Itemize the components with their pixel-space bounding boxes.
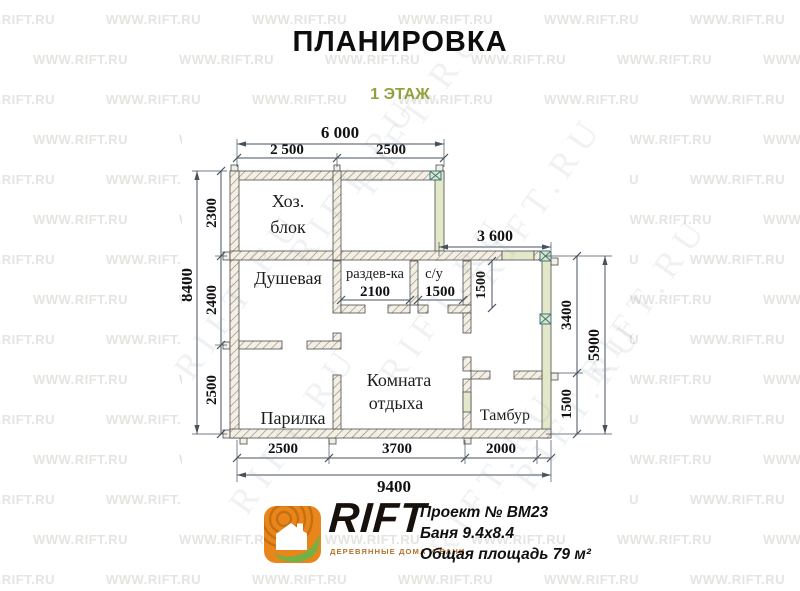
dim-wing-top: 3 600: [477, 228, 513, 245]
watermark-grid-text: WWW.RIFT.RU: [690, 332, 785, 347]
room-label-parilka: Парилка: [260, 408, 325, 428]
dim-bottom-c: 2000: [486, 441, 516, 457]
watermark-grid-text: WWW.RIFT.RU: [33, 132, 128, 147]
room-label-hoz-line2: блок: [270, 217, 306, 237]
dim-su-width: 1500: [425, 284, 455, 300]
dim-left-b: 2400: [204, 285, 220, 315]
watermark-grid-text: WWW.RIFT.RU: [398, 12, 493, 27]
floor-subtitle: 1 ЭТАЖ: [0, 86, 800, 104]
rift-logo-icon: [264, 506, 321, 563]
watermark-grid-text: WWW.RIFT.RU: [0, 412, 55, 427]
dim-wing-inner: 1500: [474, 271, 489, 299]
dim-bottom-b: 3700: [382, 441, 412, 457]
dim-left-a: 2300: [204, 198, 220, 228]
dim-top-total: 6 000: [321, 123, 359, 142]
dim-razdevka-width: 2100: [360, 284, 390, 300]
page-title: ПЛАНИРОВКА: [0, 26, 800, 59]
watermark-grid-text: WWW.RIFT.RU: [0, 332, 55, 347]
floor-plan-drawing: 6 000 2 500 2500 8400 2300 2400 2500 3 6…: [182, 112, 630, 505]
watermark-grid-text: WWW.RIFT.RU: [617, 372, 712, 387]
dim-right-total: 5900: [586, 329, 603, 361]
project-info: Проект № ВМ23 Баня 9.4х8.4 Общая площадь…: [420, 502, 591, 565]
dim-left-c: 2500: [204, 375, 220, 405]
project-number: Проект № ВМ23: [420, 502, 591, 523]
watermark-grid-text: WWW.RIFT.RU: [33, 372, 128, 387]
room-label-tambur: Тамбур: [480, 407, 530, 424]
watermark-grid-text: WWW.RIFT.RU: [617, 292, 712, 307]
project-size: Баня 9.4х8.4: [420, 523, 591, 544]
dim-left-total: 8400: [182, 268, 196, 302]
room-label-dushevaya: Душевая: [254, 268, 322, 288]
watermark-grid-text: WWW.RIFT.RU: [617, 212, 712, 227]
watermark-grid-text: WWW.RIFT.RU: [0, 12, 55, 27]
watermark-grid-text: WWW.RIFT.RU: [33, 212, 128, 227]
dim-right-a: 3400: [559, 300, 575, 330]
rift-wordmark: RIFT: [327, 494, 428, 542]
watermark-grid-text: WWW.RIFT.RU: [106, 12, 201, 27]
watermark-grid-text: WWW.RIFT.RU: [252, 12, 347, 27]
dim-top-b: 2500: [376, 142, 406, 158]
footer: RIFT ДЕРЕВЯННЫЕ ДОМА И БАНИ Проект № ВМ2…: [0, 498, 800, 578]
watermark-grid-text: WWW.RIFT.RU: [617, 452, 712, 467]
room-label-hoz-line1: Хоз.: [272, 191, 304, 211]
watermark-grid-text: WWW.RIFT.RU: [690, 172, 785, 187]
dim-right-b: 1500: [559, 389, 575, 419]
watermark-grid-text: WWW.RIFT.RU: [617, 132, 712, 147]
watermark-grid-text: WWW.RIFT.RU: [690, 12, 785, 27]
watermark-grid-text: WWW.RIFT.RU: [763, 452, 800, 467]
watermark-grid-text: WWW.RIFT.RU: [544, 12, 639, 27]
room-label-komnata-line1: Комната: [367, 370, 431, 390]
dim-top-a: 2 500: [270, 142, 304, 158]
watermark-grid-text: WWW.RIFT.RU: [0, 172, 55, 187]
watermark-grid-text: WWW.RIFT.RU: [690, 412, 785, 427]
room-label-su: с/у: [425, 266, 443, 282]
watermark-grid-text: WWW.RIFT.RU: [763, 132, 800, 147]
room-label-komnata-line2: отдыха: [369, 393, 423, 413]
dim-bottom-a: 2500: [268, 441, 298, 457]
watermark-grid-text: WWW.RIFT.RU: [763, 292, 800, 307]
project-area: Общая площадь 79 м²: [420, 544, 591, 565]
watermark-grid-text: WWW.RIFT.RU: [0, 252, 55, 267]
room-label-razdevka: раздев-ка: [346, 266, 404, 282]
watermark-grid-text: WWW.RIFT.RU: [33, 292, 128, 307]
watermark-grid-text: WWW.RIFT.RU: [763, 212, 800, 227]
watermark-grid-text: WWW.RIFT.RU: [763, 372, 800, 387]
watermark-grid-text: WWW.RIFT.RU: [33, 452, 128, 467]
poster-page: WWW.RIFT.RUWWW.RIFT.RUWWW.RIFT.RUWWW.RIF…: [0, 0, 800, 591]
watermark-grid-text: WWW.RIFT.RU: [690, 252, 785, 267]
